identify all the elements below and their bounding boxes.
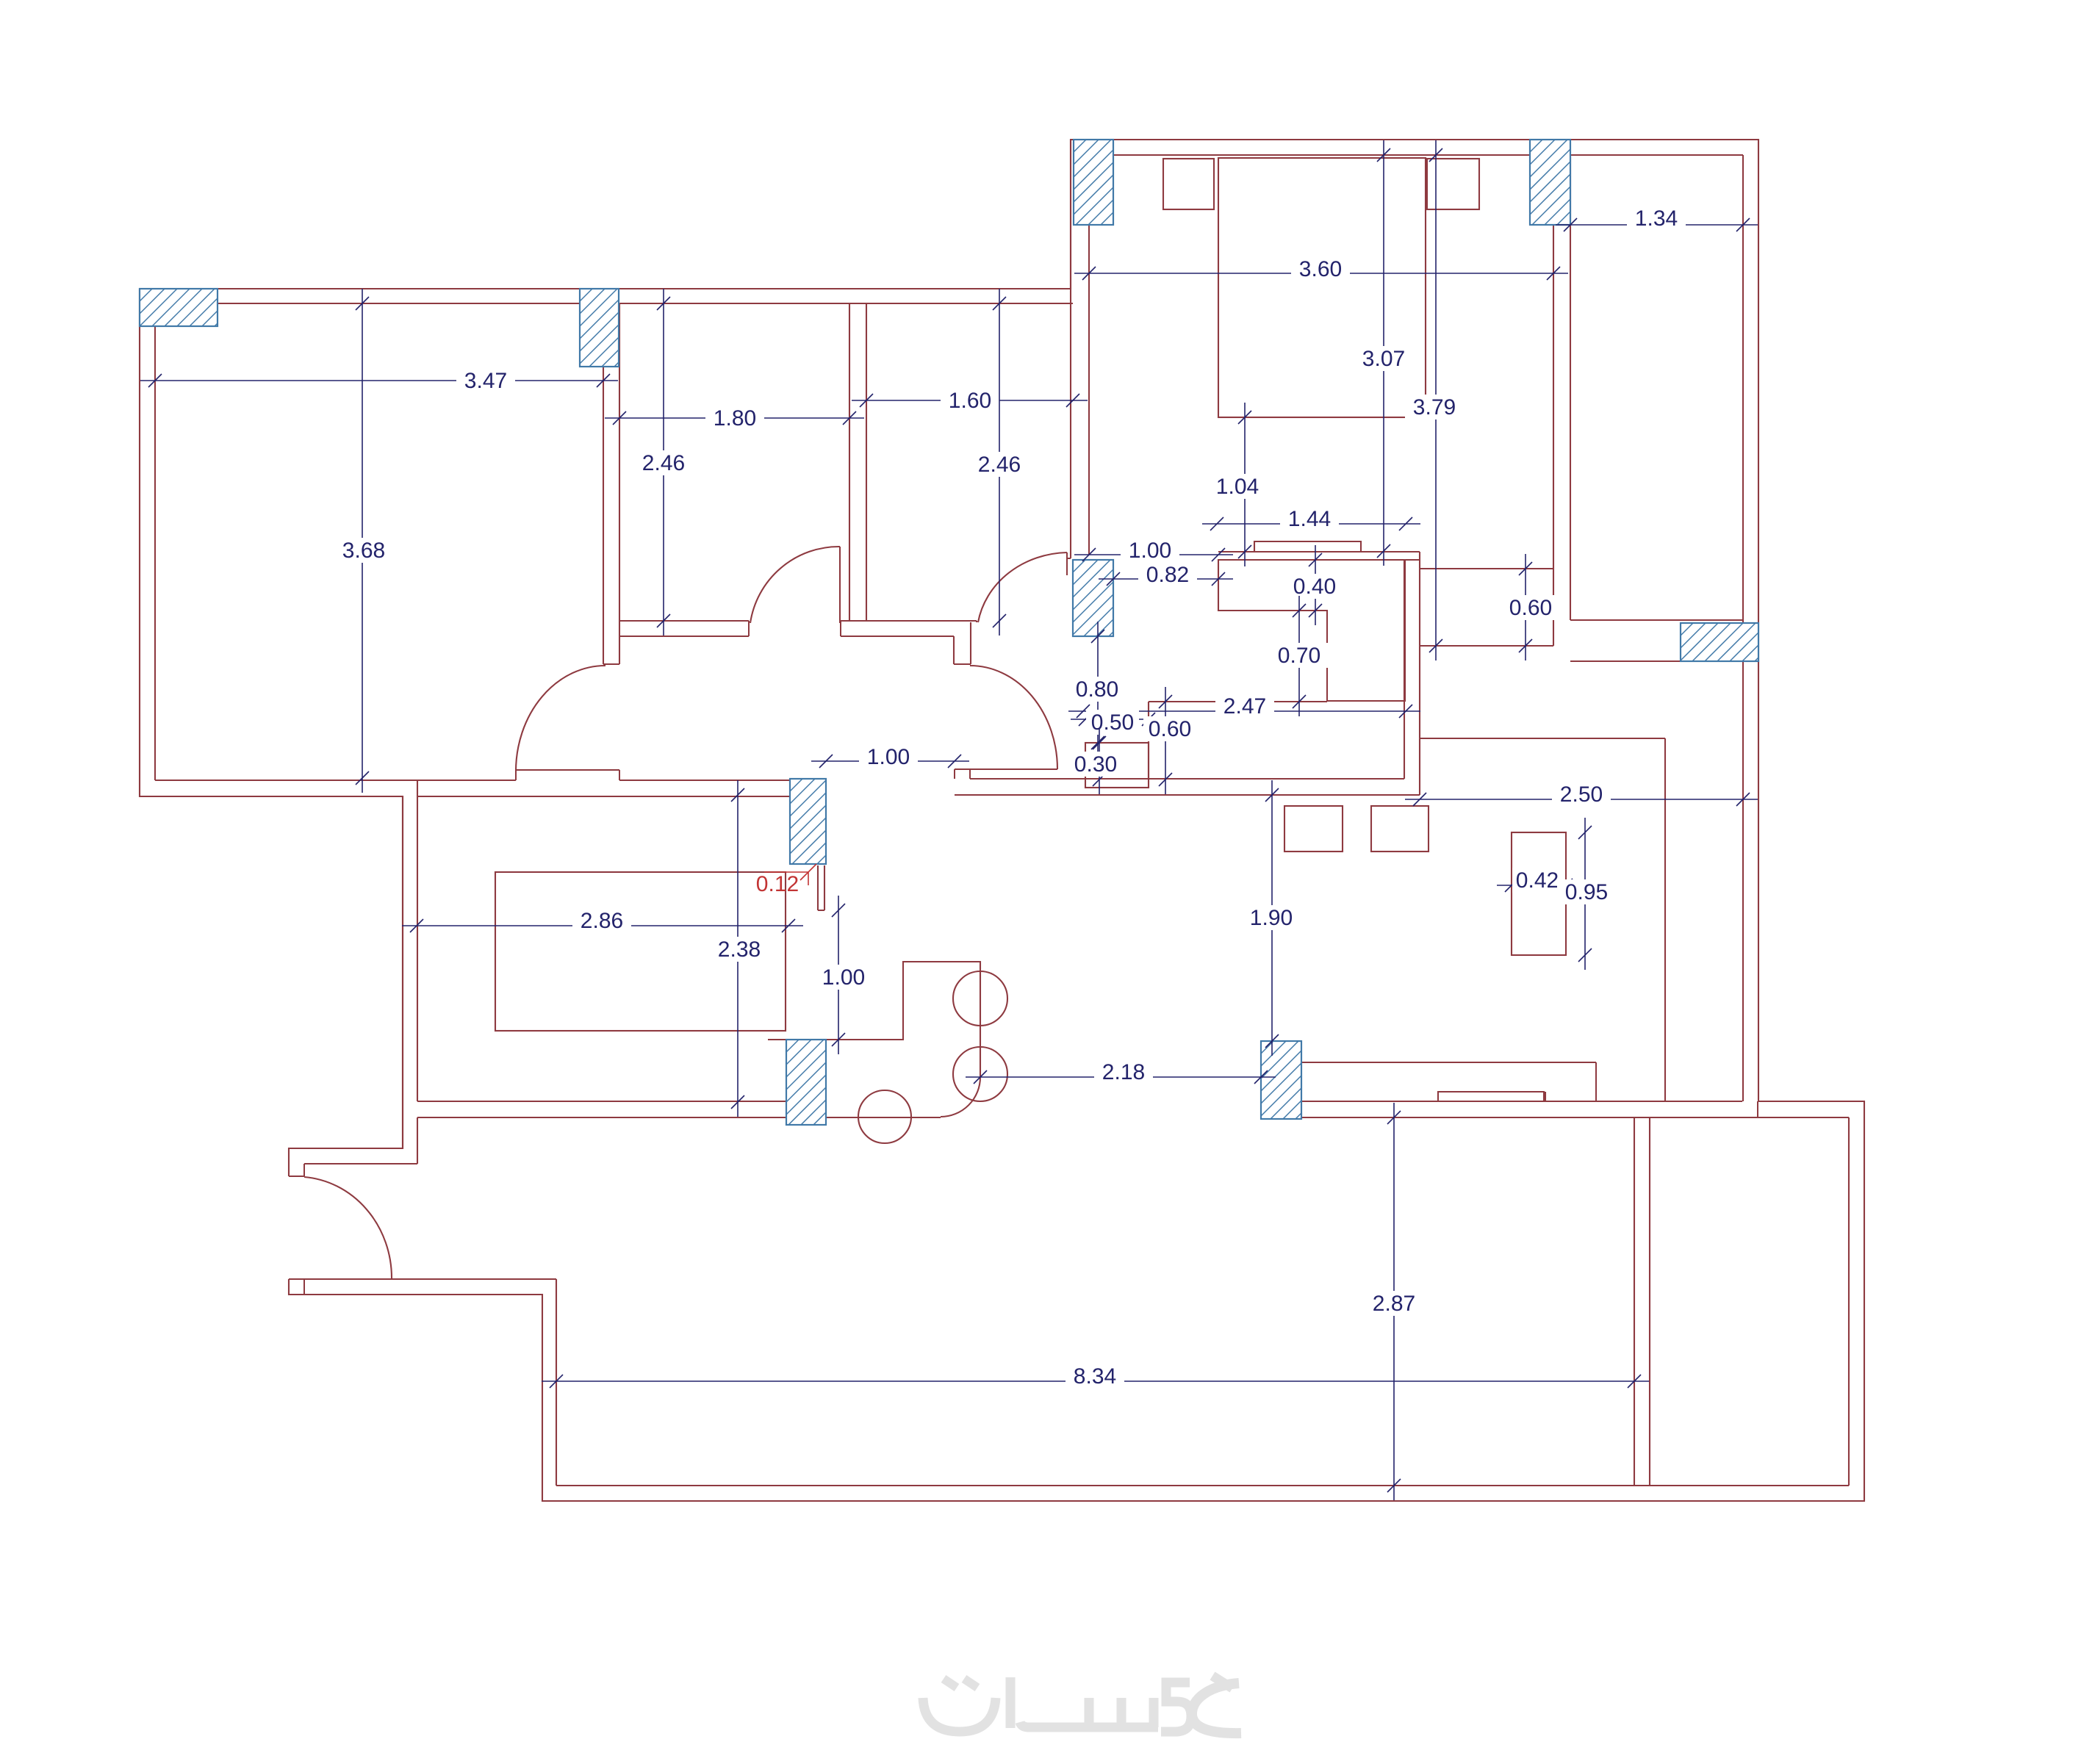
svg-text:3.47: 3.47 xyxy=(464,369,507,393)
svg-text:2.46: 2.46 xyxy=(978,453,1021,477)
svg-text:0.60: 0.60 xyxy=(1149,717,1191,741)
svg-text:0.42: 0.42 xyxy=(1516,868,1559,893)
svg-text:1.44: 1.44 xyxy=(1288,507,1331,531)
svg-text:1.00: 1.00 xyxy=(1129,539,1171,563)
svg-text:1.00: 1.00 xyxy=(822,965,865,990)
svg-text:0.30: 0.30 xyxy=(1074,752,1117,777)
svg-text:3.60: 3.60 xyxy=(1299,257,1342,281)
svg-text:0.70: 0.70 xyxy=(1278,644,1320,668)
svg-text:2.38: 2.38 xyxy=(718,937,761,962)
svg-text:2.50: 2.50 xyxy=(1560,782,1603,807)
svg-text:2.18: 2.18 xyxy=(1102,1060,1145,1084)
svg-text:0.60: 0.60 xyxy=(1509,596,1552,620)
svg-text:1.60: 1.60 xyxy=(949,389,991,413)
svg-text:1.90: 1.90 xyxy=(1250,906,1293,930)
svg-text:0.95: 0.95 xyxy=(1565,880,1608,904)
svg-text:0.40: 0.40 xyxy=(1293,575,1336,599)
svg-text:3.79: 3.79 xyxy=(1413,395,1456,420)
svg-text:1.04: 1.04 xyxy=(1216,475,1259,499)
svg-text:3.07: 3.07 xyxy=(1362,347,1405,371)
svg-text:0.82: 0.82 xyxy=(1146,563,1189,587)
svg-text:2.87: 2.87 xyxy=(1373,1292,1415,1316)
svg-text:1.00: 1.00 xyxy=(867,745,910,769)
svg-text:2.46: 2.46 xyxy=(642,451,685,475)
svg-text:3.68: 3.68 xyxy=(342,539,385,563)
svg-text:0.80: 0.80 xyxy=(1076,677,1118,702)
svg-text:0.50: 0.50 xyxy=(1091,710,1134,735)
svg-text:0.12: 0.12 xyxy=(756,872,799,896)
svg-text:2.86: 2.86 xyxy=(581,909,623,933)
svg-text:1.34: 1.34 xyxy=(1635,206,1678,231)
svg-text:1.80: 1.80 xyxy=(714,406,756,431)
svg-text:8.34: 8.34 xyxy=(1074,1364,1116,1389)
svg-text:2.47: 2.47 xyxy=(1223,694,1266,719)
